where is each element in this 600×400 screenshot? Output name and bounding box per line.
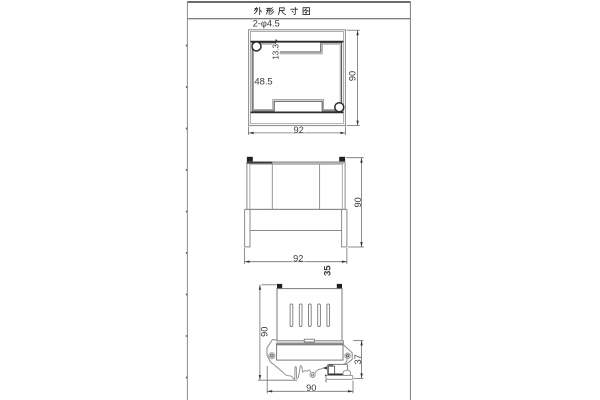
svg-text:90: 90 <box>348 71 358 81</box>
svg-text:37: 37 <box>353 354 363 364</box>
svg-text:92: 92 <box>293 125 303 135</box>
svg-text:2-φ4.5: 2-φ4.5 <box>253 19 280 29</box>
svg-text:35: 35 <box>323 265 334 276</box>
svg-text:90: 90 <box>353 197 363 207</box>
svg-text:13.3: 13.3 <box>272 44 281 60</box>
svg-text:90: 90 <box>306 383 316 393</box>
svg-text:90: 90 <box>260 327 270 337</box>
svg-text:92: 92 <box>293 254 303 264</box>
svg-text:48.5: 48.5 <box>254 76 272 87</box>
